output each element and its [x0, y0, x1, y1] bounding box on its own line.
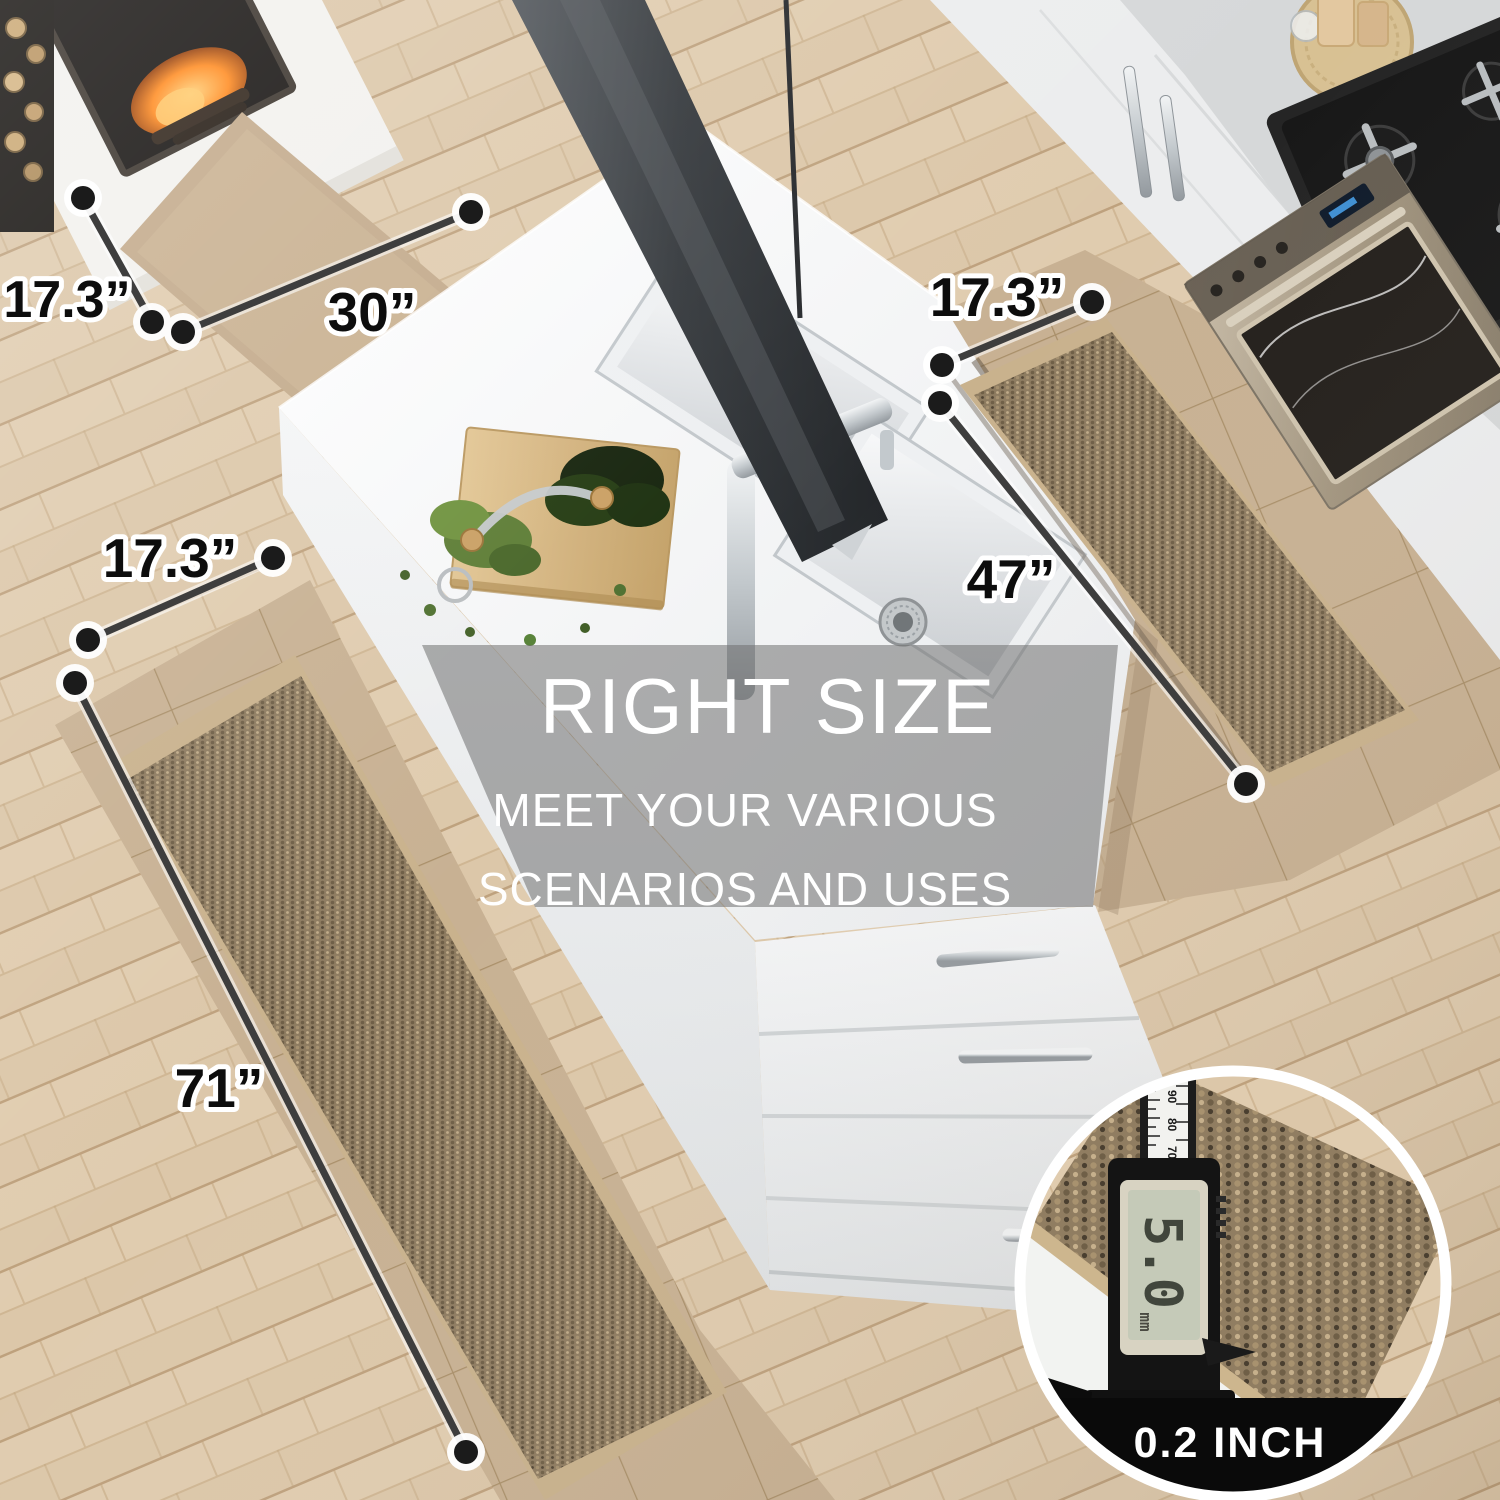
inset-caption: 0.2 INCH — [1134, 1419, 1327, 1467]
scene-canvas: RIGHT SIZE MEET YOUR VARIOUS SCENARIOS A… — [0, 0, 1500, 1500]
slogan-line-1: MEET YOUR VARIOUS — [492, 784, 997, 836]
right-rug-width-label: 17.3” — [930, 266, 1065, 328]
slogan-title: RIGHT SIZE — [540, 662, 996, 750]
left-rug-width-label: 17.3” — [103, 527, 238, 589]
caliper-reading: 5.0 — [1132, 1215, 1192, 1309]
slogan-band: RIGHT SIZE MEET YOUR VARIOUS SCENARIOS A… — [422, 645, 1118, 915]
slogan-line-2: SCENARIOS AND USES — [478, 863, 1012, 915]
kitchen-product-photo: RIGHT SIZE MEET YOUR VARIOUS SCENARIOS A… — [0, 0, 1500, 1500]
ruler-mark-70: 70 — [1165, 1146, 1179, 1160]
ruler-mark-90: 90 — [1165, 1090, 1179, 1104]
left-rug-length-label: 71” — [175, 1057, 264, 1119]
mat-width-label: 17.3” — [3, 271, 130, 329]
mat-length-label: 30” — [328, 281, 417, 343]
right-rug-length-label: 47” — [967, 548, 1056, 610]
caliper-unit: mm — [1136, 1312, 1155, 1332]
ruler-mark-80: 80 — [1165, 1118, 1179, 1132]
